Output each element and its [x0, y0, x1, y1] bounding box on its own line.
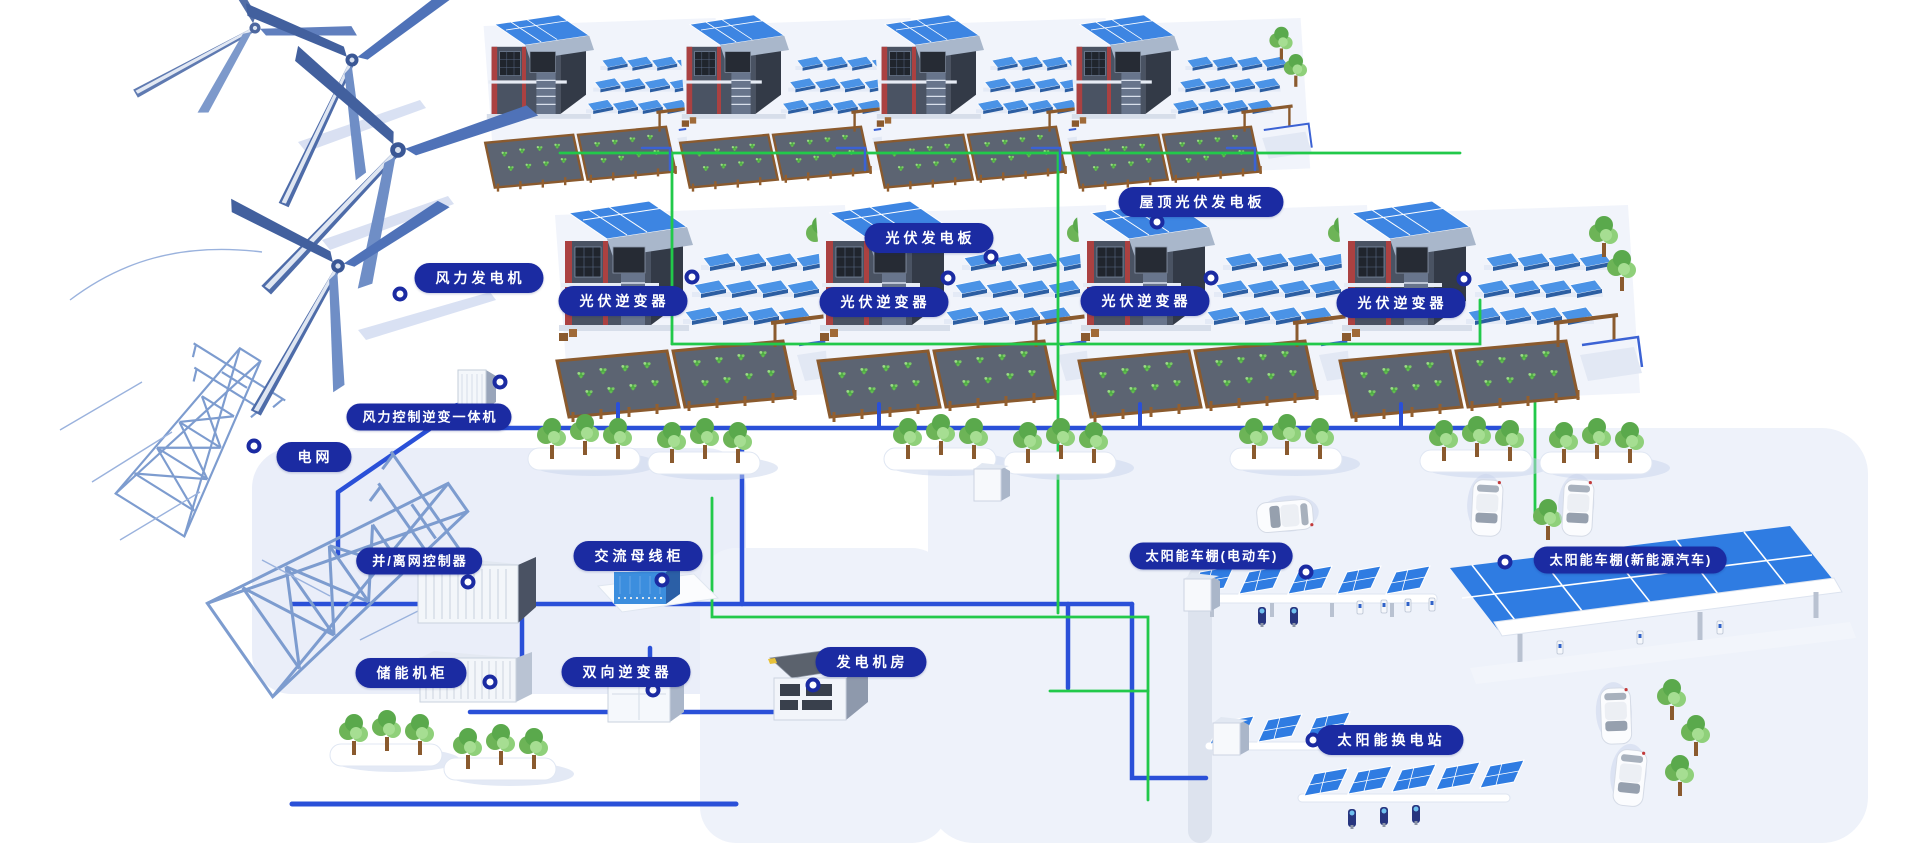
marker-pv-inverter-3[interactable]	[1204, 271, 1219, 286]
label-pv-inverter-3[interactable]: 光伏逆变器	[1081, 286, 1210, 316]
marker-generator-room[interactable]	[806, 678, 821, 693]
marker-energy-storage-cabinet[interactable]	[483, 675, 498, 690]
marker-solar-carport-nev[interactable]	[1498, 555, 1513, 570]
marker-solar-carport-ev[interactable]	[1299, 565, 1314, 580]
marker-wind-turbine[interactable]	[393, 287, 408, 302]
label-solar-swap-station[interactable]: 太阳能换电站	[1317, 725, 1464, 755]
label-generator-room[interactable]: 发电机房	[816, 647, 927, 677]
marker-power-grid[interactable]	[247, 439, 262, 454]
label-pv-inverter-4[interactable]: 光伏逆变器	[1337, 288, 1466, 318]
marker-pv-inverter-1[interactable]	[685, 270, 700, 285]
marker-pv-panel[interactable]	[984, 250, 999, 265]
label-pv-inverter-1[interactable]: 光伏逆变器	[559, 286, 688, 316]
label-ac-busbar-cabinet[interactable]: 交流母线柜	[574, 541, 703, 571]
marker-pv-inverter-2[interactable]	[941, 271, 956, 286]
marker-pv-inverter-4[interactable]	[1457, 272, 1472, 287]
label-wind-turbine[interactable]: 风力发电机	[415, 263, 544, 293]
microgrid-illustration: 风力发电机 光伏逆变器 光伏逆变器 光伏逆变器 光伏逆变器 光伏发电板 屋顶光伏…	[0, 0, 1920, 843]
label-energy-storage-cabinet[interactable]: 储能机柜	[356, 658, 467, 688]
residential-compounds	[484, 15, 1642, 422]
marker-grid-tie-controller[interactable]	[461, 575, 476, 590]
label-grid-tie-controller[interactable]: 并/离网控制器	[356, 548, 482, 575]
label-roof-pv-panel[interactable]: 屋顶光伏发电板	[1119, 187, 1284, 217]
scene-illustration	[0, 0, 1920, 843]
label-pv-inverter-2[interactable]: 光伏逆变器	[820, 287, 949, 317]
label-solar-carport-ev[interactable]: 太阳能车棚(电动车)	[1130, 543, 1293, 570]
label-pv-panel[interactable]: 光伏发电板	[865, 223, 994, 253]
marker-wind-control-inverter[interactable]	[493, 375, 508, 390]
label-bidirectional-inverter[interactable]: 双向逆变器	[562, 657, 691, 687]
label-power-grid[interactable]: 电网	[277, 442, 352, 472]
label-solar-carport-nev[interactable]: 太阳能车棚(新能源汽车)	[1534, 547, 1727, 574]
marker-ac-busbar-cabinet[interactable]	[655, 573, 670, 588]
wind-control-inverter-unit	[458, 370, 496, 408]
label-wind-control-inverter[interactable]: 风力控制逆变一体机	[346, 404, 511, 431]
